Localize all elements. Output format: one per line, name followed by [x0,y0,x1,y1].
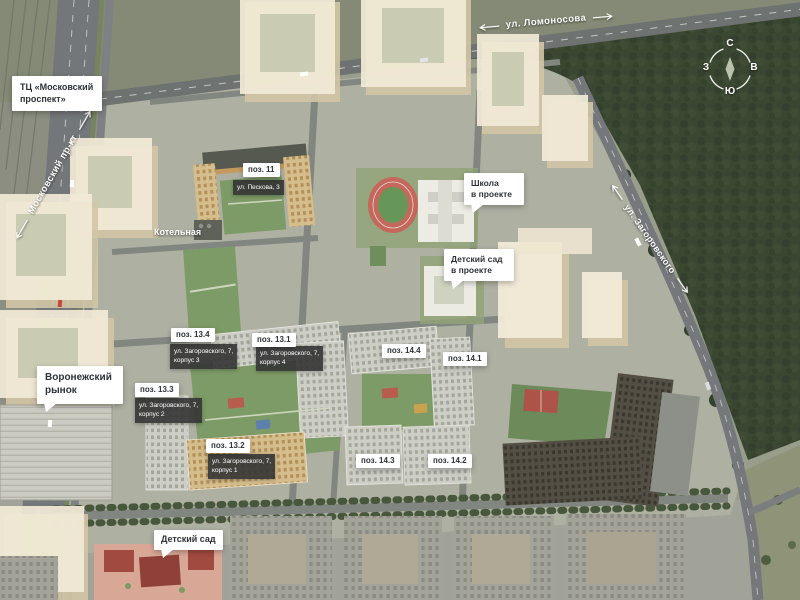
address-pos-11: ул. Пескова, 3 [233,180,284,195]
compass-needle-icon [726,57,735,81]
address-pos-13-4: ул. Загоровского, 7, корпус 3 [170,344,237,369]
marker-pos-14-2[interactable]: поз. 14.2 [428,454,472,468]
marker-pos-14-3[interactable]: поз. 14.3 [356,454,400,468]
aerial-render [0,0,800,600]
callout-school[interactable]: Школа в проекте [464,173,524,205]
compass-east: В [748,62,760,73]
marker-pos-13-4[interactable]: поз. 13.4 [171,328,215,342]
marker-pos-14-4[interactable]: поз. 14.4 [382,344,426,358]
kindergarten-building [94,544,222,600]
marker-pos-11[interactable]: поз. 11 [243,163,280,177]
arrow-right-icon [592,12,615,22]
marker-pos-13-3[interactable]: поз. 13.3 [135,383,179,397]
stadium [368,177,418,233]
market-building [0,405,112,500]
marker-pos-14-1[interactable]: поз. 14.1 [443,352,487,366]
marker-pos-13-1[interactable]: поз. 13.1 [252,333,296,347]
callout-kindergarten[interactable]: Детский сад [154,530,223,550]
callout-tc-moskovsky[interactable]: ТЦ «Московский проспект» [12,76,102,111]
address-pos-13-3: ул. Загоровского, 7, корпус 2 [135,398,202,423]
compass-north: С [724,38,736,49]
address-pos-13-1: ул. Загоровского, 7, корпус 4 [256,346,323,371]
callout-kindergarten-project[interactable]: Детский сад в проекте [444,249,514,281]
callout-voronezh-market[interactable]: Воронежский рынок [37,366,123,404]
label-boiler-house: Котельная [154,227,201,237]
masterplan-page: ТЦ «Московский проспект» Школа в проекте… [0,0,800,600]
address-pos-13-2: ул. Загоровского, 7, корпус 1 [208,454,275,479]
compass-west: З [700,62,712,73]
compass-south: Ю [724,86,736,97]
marker-pos-13-2[interactable]: поз. 13.2 [206,439,250,453]
arrow-left-icon [478,22,501,32]
